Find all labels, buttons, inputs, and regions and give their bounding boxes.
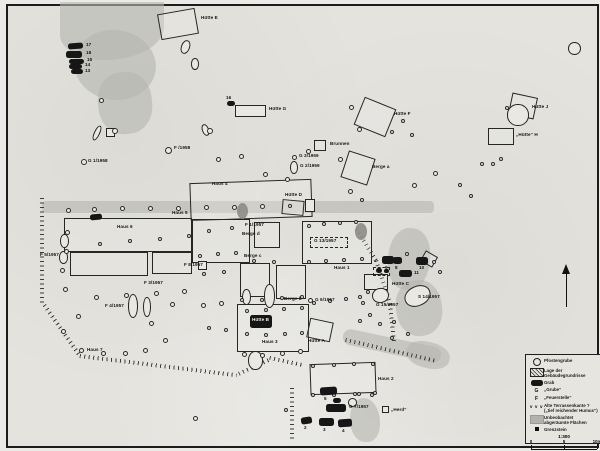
posthole-circle <box>245 332 249 336</box>
posthole-circle <box>222 270 226 274</box>
map-label: F /1958 <box>174 146 190 151</box>
posthole-circle <box>263 172 268 177</box>
pit-outline <box>128 294 138 318</box>
scale-tick <box>531 445 532 449</box>
map-label: Hütte G <box>269 107 286 112</box>
posthole-circle <box>338 157 343 162</box>
legend-entry: v v vAlte Terrassenkante ? („tief reiche… <box>529 403 599 413</box>
posthole-circle <box>252 259 256 263</box>
north-arrow <box>560 264 574 310</box>
posthole-circle <box>245 309 249 313</box>
pit-outline <box>91 124 103 141</box>
posthole-circle <box>358 295 362 299</box>
legend-label: Grab <box>544 380 554 385</box>
vvv-glyph: v v v <box>530 404 543 409</box>
posthole-circle <box>284 408 288 412</box>
map-label: G 1/1958 <box>88 159 108 164</box>
grave-marker <box>90 213 102 220</box>
pit-outline <box>191 58 199 70</box>
posthole-circle <box>216 252 220 256</box>
posthole-circle <box>360 198 364 202</box>
map-label: 14 <box>85 63 90 68</box>
outline-feature <box>305 199 315 212</box>
posthole-circle <box>357 392 361 396</box>
posthole-circle <box>390 336 394 340</box>
posthole-circle <box>272 260 276 264</box>
legend-label: Alte Terrassenkante ? („tief reichender … <box>544 403 598 413</box>
posthole-circle <box>98 242 102 246</box>
posthole-circle <box>366 290 370 294</box>
f-legend-symbol: F <box>529 396 544 402</box>
legend-label: „Feuerstelle“ <box>544 395 572 400</box>
legend-label: Unbeobachtet abgeräumte Flächen <box>544 415 587 425</box>
posthole-circle <box>406 332 410 336</box>
posthole-circle <box>148 206 153 211</box>
legend-entries: PfostengrubeLage der GebäudegrundrisseGr… <box>529 358 599 432</box>
grave-marker <box>338 419 353 428</box>
hatch-swatch <box>530 368 544 377</box>
map-label: 8 <box>395 266 398 271</box>
posthole-circle <box>412 183 417 188</box>
map-label: Haus 2 <box>378 377 394 382</box>
map-label: G 3/1959 <box>299 154 319 159</box>
posthole-circle <box>198 254 202 258</box>
map-label: 18 <box>86 51 91 56</box>
posthole-circle <box>332 363 336 367</box>
grave-marker <box>68 42 83 49</box>
posthole-circle <box>112 128 118 134</box>
posthole-circle <box>288 204 292 208</box>
map-label: Hütte D <box>285 193 302 198</box>
grave-marker <box>66 51 82 58</box>
posthole-circle <box>491 162 495 166</box>
posthole-circle <box>163 338 168 343</box>
legend-label: „Grube“ <box>544 387 561 392</box>
map-label: Haus 5 <box>172 211 188 216</box>
posthole-circle <box>311 364 315 368</box>
map-label: „Hütte“ H <box>516 133 538 138</box>
posthole-circle <box>280 351 285 356</box>
g-glyph: G <box>535 388 539 394</box>
posthole-circle <box>307 260 311 264</box>
map-frame: Hütte E171815141316Hütte GHütte FHütte J… <box>6 4 599 448</box>
map-label: Hütte A <box>308 339 325 344</box>
posthole-circle <box>360 257 364 261</box>
map-label: Berge b <box>284 297 302 302</box>
map-label: 10 <box>419 266 424 271</box>
posthole-circle <box>81 159 87 165</box>
posthole-circle <box>64 249 69 254</box>
posthole-circle <box>307 224 311 228</box>
building-hatched-area <box>314 140 326 151</box>
legend-entry: Grenzstein <box>529 427 599 432</box>
posthole-circle <box>458 183 462 187</box>
terrace-line <box>290 388 294 440</box>
terrace-line <box>269 356 303 367</box>
grave-marker <box>71 69 83 74</box>
posthole-circle <box>361 301 365 305</box>
map-label: 16 <box>226 96 231 101</box>
posthole-circle <box>499 157 503 161</box>
posthole-circle <box>311 393 315 397</box>
map-label: 3 <box>323 428 326 433</box>
posthole-circle <box>378 322 382 326</box>
map-label: 11 <box>414 271 419 276</box>
posthole-circle <box>282 307 286 311</box>
posthole-circle <box>322 222 326 226</box>
map-label: Hütte E <box>201 16 218 21</box>
dark-pit <box>355 223 367 240</box>
posthole-circle <box>123 351 128 356</box>
posthole-circle <box>260 204 265 209</box>
posthole-circle <box>357 127 362 132</box>
map-label: 5 <box>324 397 327 402</box>
posthole-circle <box>66 208 71 213</box>
posthole-circle <box>193 416 198 421</box>
posthole-circle <box>120 206 125 211</box>
grave-marker <box>227 101 235 106</box>
g-legend-symbol: G <box>529 388 544 394</box>
terrace-line <box>80 354 237 377</box>
posthole-circle <box>433 171 438 176</box>
pit-outline <box>568 42 581 55</box>
posthole-circle <box>207 128 213 134</box>
site-map: Hütte E171815141316Hütte GHütte FHütte J… <box>2 2 600 451</box>
sq-swatch <box>535 427 539 431</box>
posthole-circle <box>298 349 303 354</box>
posthole-circle <box>230 226 234 230</box>
posthole-circle <box>344 297 348 301</box>
scale-tick <box>597 445 598 449</box>
posthole-circle <box>207 229 211 233</box>
gray-swatch <box>530 415 544 424</box>
map-label: F 5/1957 <box>40 253 59 258</box>
posthole-circle <box>128 239 132 243</box>
posthole-circle <box>410 133 414 137</box>
posthole-circle <box>240 298 244 302</box>
grave-marker <box>399 270 412 277</box>
map-label: G 13/1957 <box>314 239 336 244</box>
posthole-circle <box>216 157 221 162</box>
posthole-circle <box>300 331 304 335</box>
posthole-circle <box>392 320 396 324</box>
scale-tick <box>564 445 565 449</box>
pit-outline <box>507 104 529 126</box>
map-label: Hütte J <box>532 105 548 110</box>
posthole-circle <box>234 251 238 255</box>
building-hatched-area <box>70 252 148 276</box>
legend: PfostengrubeLage der GebäudegrundrisseGr… <box>525 354 600 444</box>
posthole-circle <box>143 348 148 353</box>
map-label: Berge d <box>242 232 260 237</box>
map-label: Hütte F <box>394 112 411 117</box>
posthole-circle <box>201 303 206 308</box>
dark-pit <box>237 203 248 219</box>
map-label: Hütte B <box>252 318 269 323</box>
posthole-circle <box>232 205 237 210</box>
scale-tick-label: 10m <box>593 439 600 444</box>
posthole-circle <box>124 293 129 298</box>
map-label: Brunnen <box>330 142 350 147</box>
map-label: Haus 4 <box>212 182 228 187</box>
posthole-circle <box>99 98 104 103</box>
posthole-circle <box>390 130 394 134</box>
posthole-circle <box>358 319 362 323</box>
posthole-circle <box>207 326 211 330</box>
legend-entry: G„Grube“ <box>529 387 599 393</box>
sq-legend-symbol <box>529 427 544 431</box>
posthole-circle <box>342 258 346 262</box>
posthole-circle <box>239 154 244 159</box>
posthole-circle <box>338 221 342 225</box>
map-label: F 1/1957 <box>245 223 264 228</box>
posthole-circle <box>469 194 473 198</box>
legend-entry: Grab <box>529 380 599 386</box>
posthole-circle <box>348 189 353 194</box>
pit-outline <box>60 234 69 248</box>
posthole-circle <box>79 348 84 353</box>
pit-outline <box>290 161 298 174</box>
posthole-circle <box>149 321 154 326</box>
hatch-legend-symbol <box>529 368 544 377</box>
map-label: F 8/1957 <box>184 263 203 268</box>
posthole-circle <box>260 353 265 358</box>
circle-swatch <box>533 358 541 366</box>
legend-label: Pfostengrube <box>544 358 572 363</box>
scale-tick-label: 5 <box>563 439 565 444</box>
posthole-circle <box>224 328 228 332</box>
posthole-circle <box>182 289 187 294</box>
posthole-circle <box>170 302 175 307</box>
grave-legend-symbol <box>529 380 544 386</box>
f-glyph: F <box>535 396 538 402</box>
posthole-circle <box>432 260 436 264</box>
posthole-circle <box>264 333 268 337</box>
posthole-circle <box>65 230 70 235</box>
grave-marker <box>319 418 334 426</box>
posthole-circle <box>60 268 65 273</box>
posthole-circle <box>219 301 224 306</box>
legend-entry: Unbeobachtet abgeräumte Flächen <box>529 415 599 425</box>
grave-marker <box>416 257 428 265</box>
grave-marker <box>393 257 402 264</box>
scale-ratio: 1:300 <box>529 434 599 439</box>
posthole-circle <box>370 393 374 397</box>
posthole-circle <box>292 155 297 160</box>
pit-outline <box>143 297 151 317</box>
circle-legend-symbol <box>529 358 544 366</box>
building-hatched-area <box>281 199 304 216</box>
building-hatched-area <box>157 8 199 40</box>
posthole-circle <box>368 313 372 317</box>
building-hatched-area <box>276 265 306 299</box>
posthole-circle <box>94 295 99 300</box>
pit-outline <box>242 289 251 305</box>
posthole-circle <box>352 362 356 366</box>
posthole-circle <box>405 252 409 256</box>
map-label: 17 <box>86 43 91 48</box>
posthole-circle <box>283 332 287 336</box>
grave-marker <box>301 416 313 424</box>
outline-feature <box>382 406 389 413</box>
legend-label: Lage der Gebäudegrundrisse <box>544 368 585 378</box>
map-label: G 15/1957 <box>376 303 398 308</box>
north-arrow-shaft <box>566 273 567 307</box>
map-label: Haus 6 <box>117 225 133 230</box>
gray-legend-symbol <box>529 415 544 424</box>
posthole-circle <box>202 272 206 276</box>
map-label: Berge a <box>372 165 390 170</box>
map-label: 6 <box>334 400 337 405</box>
scale: 1:300 0510m <box>529 434 599 450</box>
posthole-circle <box>63 287 68 292</box>
outline-feature <box>235 105 266 117</box>
map-label: 4 <box>342 429 345 434</box>
posthole-circle <box>92 207 97 212</box>
legend-entry: F„Feuerstelle“ <box>529 395 599 401</box>
grave-marker <box>326 404 346 412</box>
map-label: S 14/1957 <box>418 295 440 300</box>
scale-tick-label: 0 <box>530 439 532 444</box>
map-label: G 6/1957 <box>315 298 335 303</box>
vvv-legend-symbol: v v v <box>529 404 544 409</box>
map-label: F 3/1957 <box>144 281 163 286</box>
map-label: Haus 7 <box>87 348 103 353</box>
map-label: 2 <box>304 426 307 431</box>
posthole-circle <box>264 308 268 312</box>
map-label: „Herd“ <box>391 408 407 413</box>
posthole-circle <box>187 234 191 238</box>
posthole-circle <box>349 105 354 110</box>
posthole-circle <box>438 270 442 274</box>
legend-entry: Pfostengrube <box>529 358 599 366</box>
posthole-circle <box>505 106 509 110</box>
map-label: Berge c <box>244 254 262 259</box>
grave-marker <box>320 386 338 395</box>
posthole-circle <box>165 147 172 154</box>
map-label: Haus 3 <box>262 340 278 345</box>
pit-outline <box>264 284 275 308</box>
posthole-circle <box>204 205 209 210</box>
posthole-circle <box>76 314 81 319</box>
grave-marker <box>376 268 382 273</box>
pit-outline <box>179 39 192 55</box>
building-hatched-area <box>488 128 514 145</box>
posthole-circle <box>371 362 375 366</box>
posthole-circle <box>324 259 328 263</box>
posthole-circle <box>242 352 247 357</box>
posthole-circle <box>61 329 66 334</box>
legend-label: Grenzstein <box>544 427 567 432</box>
map-label: Hütte C <box>392 282 409 287</box>
building-hatched-area <box>340 150 375 185</box>
posthole-circle <box>154 291 159 296</box>
legend-entry: Lage der Gebäudegrundrisse <box>529 368 599 378</box>
posthole-circle <box>401 119 405 123</box>
map-label: 13 <box>85 69 90 74</box>
posthole-circle <box>158 237 162 241</box>
map-label: F 4/1957 <box>105 304 124 309</box>
posthole-circle <box>300 306 304 310</box>
posthole-circle <box>480 162 484 166</box>
map-label: G 2/1959 <box>300 164 320 169</box>
map-label: 9 <box>385 266 388 271</box>
posthole-circle <box>354 220 358 224</box>
grave-swatch <box>531 380 543 386</box>
map-label: G 7/1957 <box>349 405 369 410</box>
posthole-circle <box>285 177 290 182</box>
map-label: Haus 1 <box>334 266 350 271</box>
posthole-circle <box>260 298 264 302</box>
